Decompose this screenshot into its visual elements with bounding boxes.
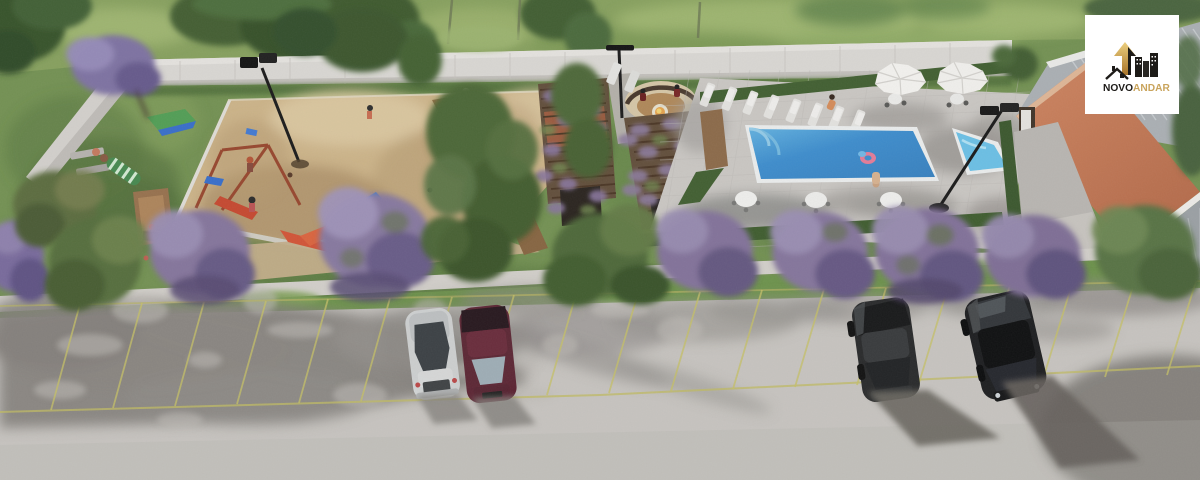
svg-text:NOVOANDAR: NOVOANDAR <box>1103 83 1170 94</box>
